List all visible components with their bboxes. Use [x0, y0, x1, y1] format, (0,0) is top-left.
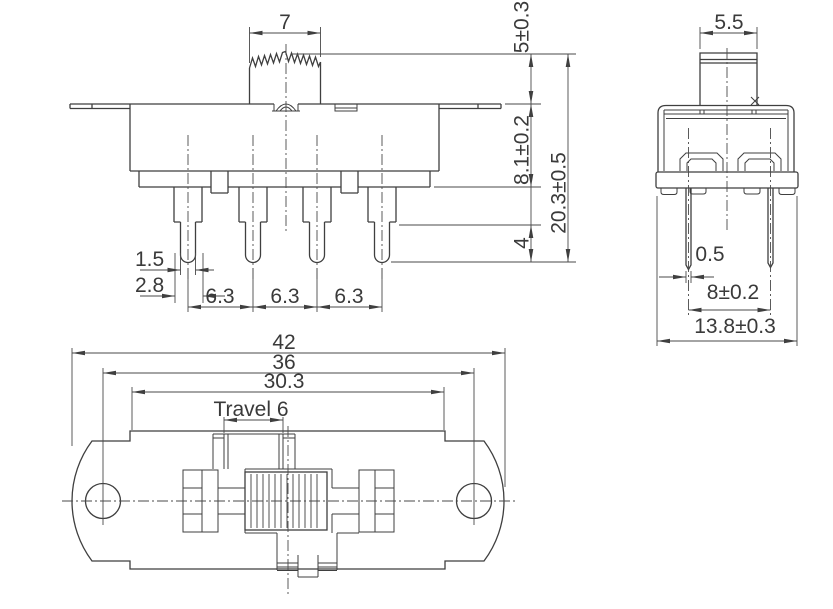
side-contact-left: [680, 153, 723, 171]
front-knob-sides: [250, 62, 321, 104]
side-view: [656, 48, 798, 316]
top-view: [62, 368, 516, 597]
front-pins: [174, 187, 396, 263]
dim-front-knob-height: 5±0.3: [511, 1, 534, 53]
dim-front-knob-width: 7: [279, 11, 291, 34]
dim-front-overall-height: 20.3±0.5: [548, 152, 571, 234]
dim-front-pin-wide-width: 2.8: [135, 274, 164, 297]
dim-side-pin-row-spacing: 8±0.2: [707, 281, 759, 304]
front-base: [139, 171, 430, 187]
front-bosses: [211, 171, 358, 193]
front-center-lines: [188, 44, 382, 280]
dim-top-frame-length: 30.3: [264, 370, 305, 393]
slide-switch-technical-drawing: 7 5±0.3 8.1±0.2 4 20.3±0.5 1.5 2.8 6.3 6…: [0, 0, 833, 609]
side-center-lines: [689, 48, 771, 316]
dim-top-travel: Travel 6: [213, 398, 288, 421]
front-mounting-flanges: [70, 104, 501, 109]
dim-front-pin-pitch-12: 6.3: [205, 285, 234, 308]
dim-front-body-height: 8.1±0.2: [511, 115, 534, 185]
top-slider-slot: [213, 434, 295, 469]
dim-side-knob-width: 5.5: [714, 11, 743, 34]
front-top-slot: [335, 104, 357, 111]
side-feet: [661, 188, 795, 195]
dim-front-pin-tip-length: 4: [511, 237, 534, 249]
side-body-inner: [664, 110, 788, 171]
front-view: [70, 44, 501, 280]
dim-front-pin-pitch-23: 6.3: [270, 285, 299, 308]
dim-front-pin-narrow-width: 1.5: [135, 248, 164, 271]
front-body-outline: [130, 104, 439, 171]
side-contact-right: [738, 153, 781, 171]
dim-side-pin-thickness: 0.5: [695, 243, 724, 266]
dim-front-pin-pitch-34: 6.3: [334, 285, 363, 308]
side-dimensions: 5.5 0.5 8±0.2 13.8±0.3: [657, 11, 797, 346]
drawing-sheet: 7 5±0.3 8.1±0.2 4 20.3±0.5 1.5 2.8 6.3 6…: [0, 0, 833, 609]
top-bottom-protrusion: [277, 533, 337, 577]
side-knob: [700, 53, 757, 105]
side-clearance-mark: [751, 97, 759, 105]
top-center-lines: [62, 426, 516, 597]
dim-side-overall-width: 13.8±0.3: [694, 315, 776, 338]
top-dimensions: 42 36 30.3 Travel 6: [72, 331, 505, 487]
front-dimensions: 7 5±0.3 8.1±0.2 4 20.3±0.5 1.5 2.8 6.3 6…: [135, 1, 576, 312]
